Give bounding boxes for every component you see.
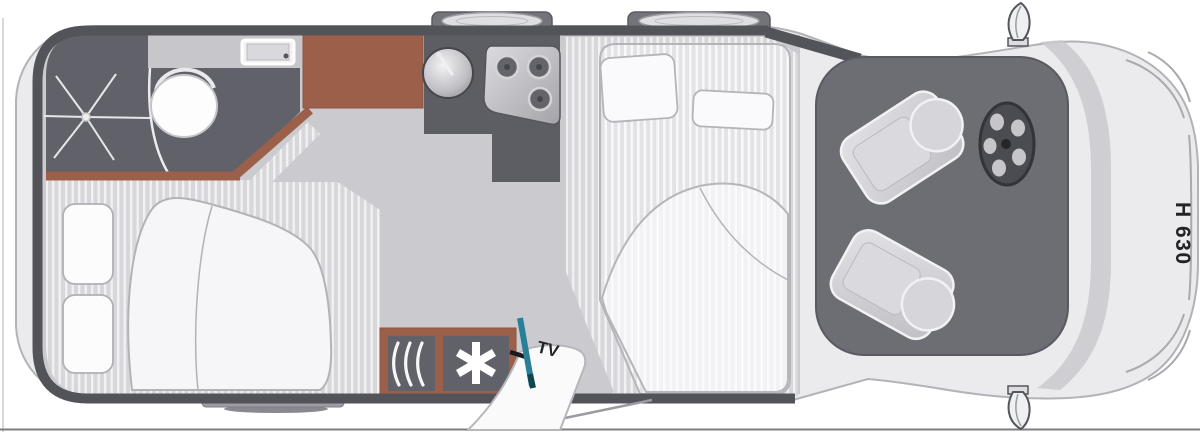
drop-down-pillow-2 [692, 90, 774, 130]
cab [816, 57, 1068, 355]
toilet [151, 70, 217, 137]
height-badge: H 630 [1171, 202, 1194, 266]
side-mirror-bottom [1008, 386, 1030, 429]
appliance-cabinets [380, 328, 516, 398]
rear-bed-pillow-2 [63, 295, 113, 373]
drop-down-pillow-1 [600, 53, 678, 122]
rear-bed-pillow-1 [63, 204, 113, 284]
kitchen-sink [423, 48, 473, 98]
motorhome-floorplan: TV H 630 [0, 0, 1200, 432]
side-mirror-top [1008, 3, 1030, 46]
hob-3-burner [484, 46, 560, 124]
washbasin [242, 40, 294, 64]
steering-wheel [980, 103, 1034, 185]
drop-down-bed [600, 44, 790, 394]
floorplan-canvas: TV H 630 [0, 0, 1200, 432]
